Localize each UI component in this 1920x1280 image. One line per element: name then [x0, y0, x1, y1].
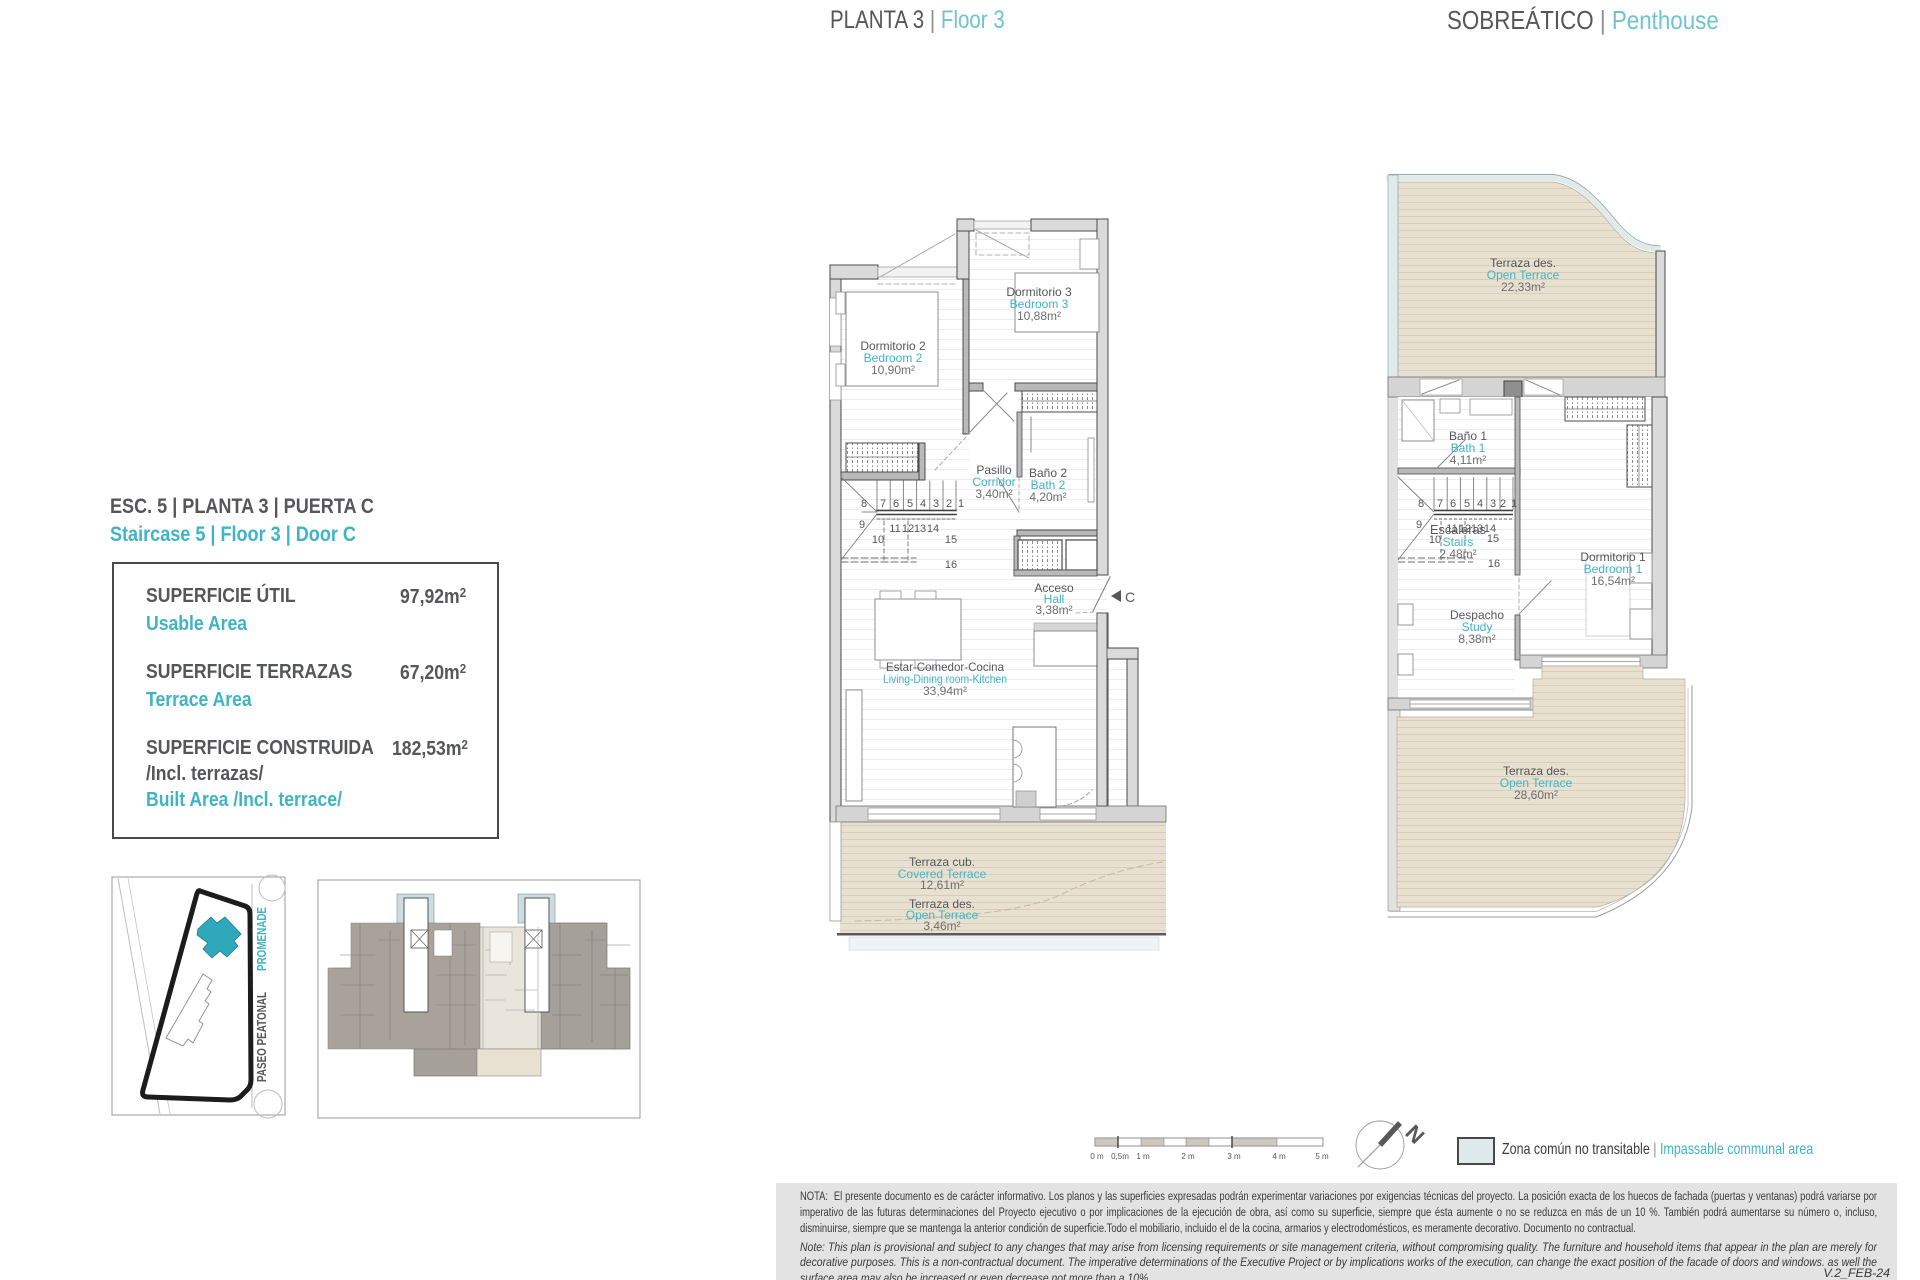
svg-text:2: 2: [946, 498, 952, 510]
svg-text:N: N: [1400, 1120, 1429, 1149]
svg-text:15: 15: [1487, 533, 1499, 545]
svg-text:7: 7: [880, 498, 886, 510]
svg-text:9: 9: [859, 519, 865, 531]
svg-text:10: 10: [872, 534, 884, 546]
svg-text:5 m: 5 m: [1315, 1152, 1329, 1161]
svg-text:1: 1: [958, 498, 964, 510]
svg-text:3,40m²: 3,40m²: [975, 487, 1012, 501]
svg-text:4,11m²: 4,11m²: [1450, 453, 1486, 467]
svg-text:3: 3: [933, 498, 939, 510]
svg-text:8,38m²: 8,38m²: [1458, 632, 1495, 646]
svg-text:22,33m²: 22,33m²: [1501, 280, 1545, 294]
svg-text:16: 16: [945, 559, 957, 571]
svg-text:4: 4: [1477, 498, 1483, 510]
svg-text:4: 4: [920, 498, 926, 510]
svg-text:14: 14: [927, 523, 939, 535]
svg-text:8: 8: [1418, 498, 1424, 510]
svg-text:10,90m²: 10,90m²: [871, 363, 915, 377]
svg-text:16: 16: [1488, 558, 1500, 570]
svg-text:0,5m: 0,5m: [1111, 1152, 1129, 1161]
svg-text:10,88m²: 10,88m²: [1017, 309, 1061, 323]
svg-text:3 m: 3 m: [1227, 1152, 1241, 1161]
svg-text:6: 6: [893, 498, 899, 510]
svg-text:33,94m²: 33,94m²: [923, 684, 967, 698]
svg-text:13: 13: [914, 523, 926, 535]
svg-text:2: 2: [1500, 498, 1506, 510]
svg-text:28,60m²: 28,60m²: [1514, 788, 1558, 802]
svg-text:1 m: 1 m: [1136, 1152, 1150, 1161]
svg-text:1: 1: [1511, 498, 1517, 510]
svg-text:3,38m²: 3,38m²: [1035, 603, 1072, 617]
svg-text:12,61m²: 12,61m²: [920, 878, 964, 892]
svg-text:C: C: [1125, 589, 1135, 605]
svg-text:5: 5: [907, 498, 913, 510]
svg-text:3: 3: [1490, 498, 1496, 510]
svg-text:2 m: 2 m: [1181, 1152, 1195, 1161]
svg-text:7: 7: [1437, 498, 1443, 510]
svg-text:PROMENADE: PROMENADE: [255, 907, 269, 971]
svg-text:16,54m²: 16,54m²: [1591, 574, 1635, 588]
svg-text:0 m: 0 m: [1090, 1152, 1104, 1161]
svg-text:11: 11: [889, 523, 900, 535]
svg-text:5: 5: [1464, 498, 1470, 510]
svg-text:9: 9: [1416, 519, 1422, 531]
svg-text:15: 15: [945, 534, 957, 546]
svg-text:6: 6: [1450, 498, 1456, 510]
svg-text:4,20m²: 4,20m²: [1029, 490, 1066, 504]
svg-text:4 m: 4 m: [1272, 1152, 1286, 1161]
svg-text:3,46m²: 3,46m²: [923, 919, 960, 933]
svg-text:12: 12: [902, 523, 914, 535]
svg-text:8: 8: [861, 498, 867, 510]
svg-text:2,48m²: 2,48m²: [1439, 547, 1476, 561]
svg-text:PASEO PEATONAL: PASEO PEATONAL: [255, 992, 269, 1082]
